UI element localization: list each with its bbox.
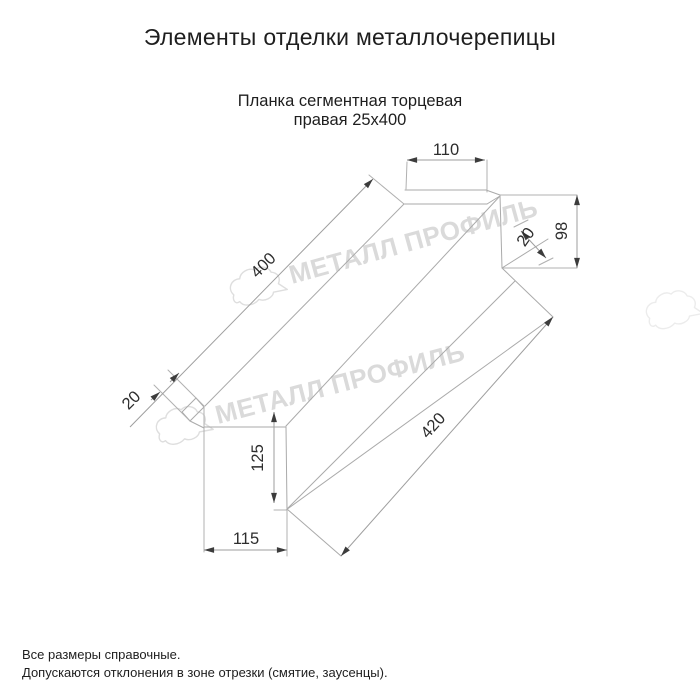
watermark-text: МЕТАЛЛ ПРОФИЛЬ — [286, 192, 541, 290]
technical-drawing: МЕТАЛЛ ПРОФИЛЬ МЕТАЛЛ ПРОФИЛЬ — [0, 0, 700, 700]
metall-profil-logo-icon — [643, 285, 700, 332]
footer-notes: Все размеры справочные. Допускаются откл… — [22, 646, 388, 681]
footer-note-deviations: Допускаются отклонения в зоне отрезки (с… — [22, 664, 388, 682]
dim-label-420: 420 — [417, 409, 449, 442]
watermark-edge — [643, 285, 700, 332]
dim-label-98: 98 — [553, 222, 571, 240]
dim-label-400: 400 — [247, 249, 279, 281]
dim-label-110: 110 — [433, 141, 459, 159]
drawing-page: Элементы отделки металлочерепицы Планка … — [0, 0, 700, 700]
metall-profil-logo-icon — [153, 401, 215, 448]
dim-label-125: 125 — [249, 444, 267, 472]
dim-label-20-bottom: 20 — [119, 388, 145, 414]
dim-label-115: 115 — [233, 530, 259, 548]
watermark-top: МЕТАЛЛ ПРОФИЛЬ — [227, 191, 542, 309]
footer-note-reference: Все размеры справочные. — [22, 646, 388, 664]
